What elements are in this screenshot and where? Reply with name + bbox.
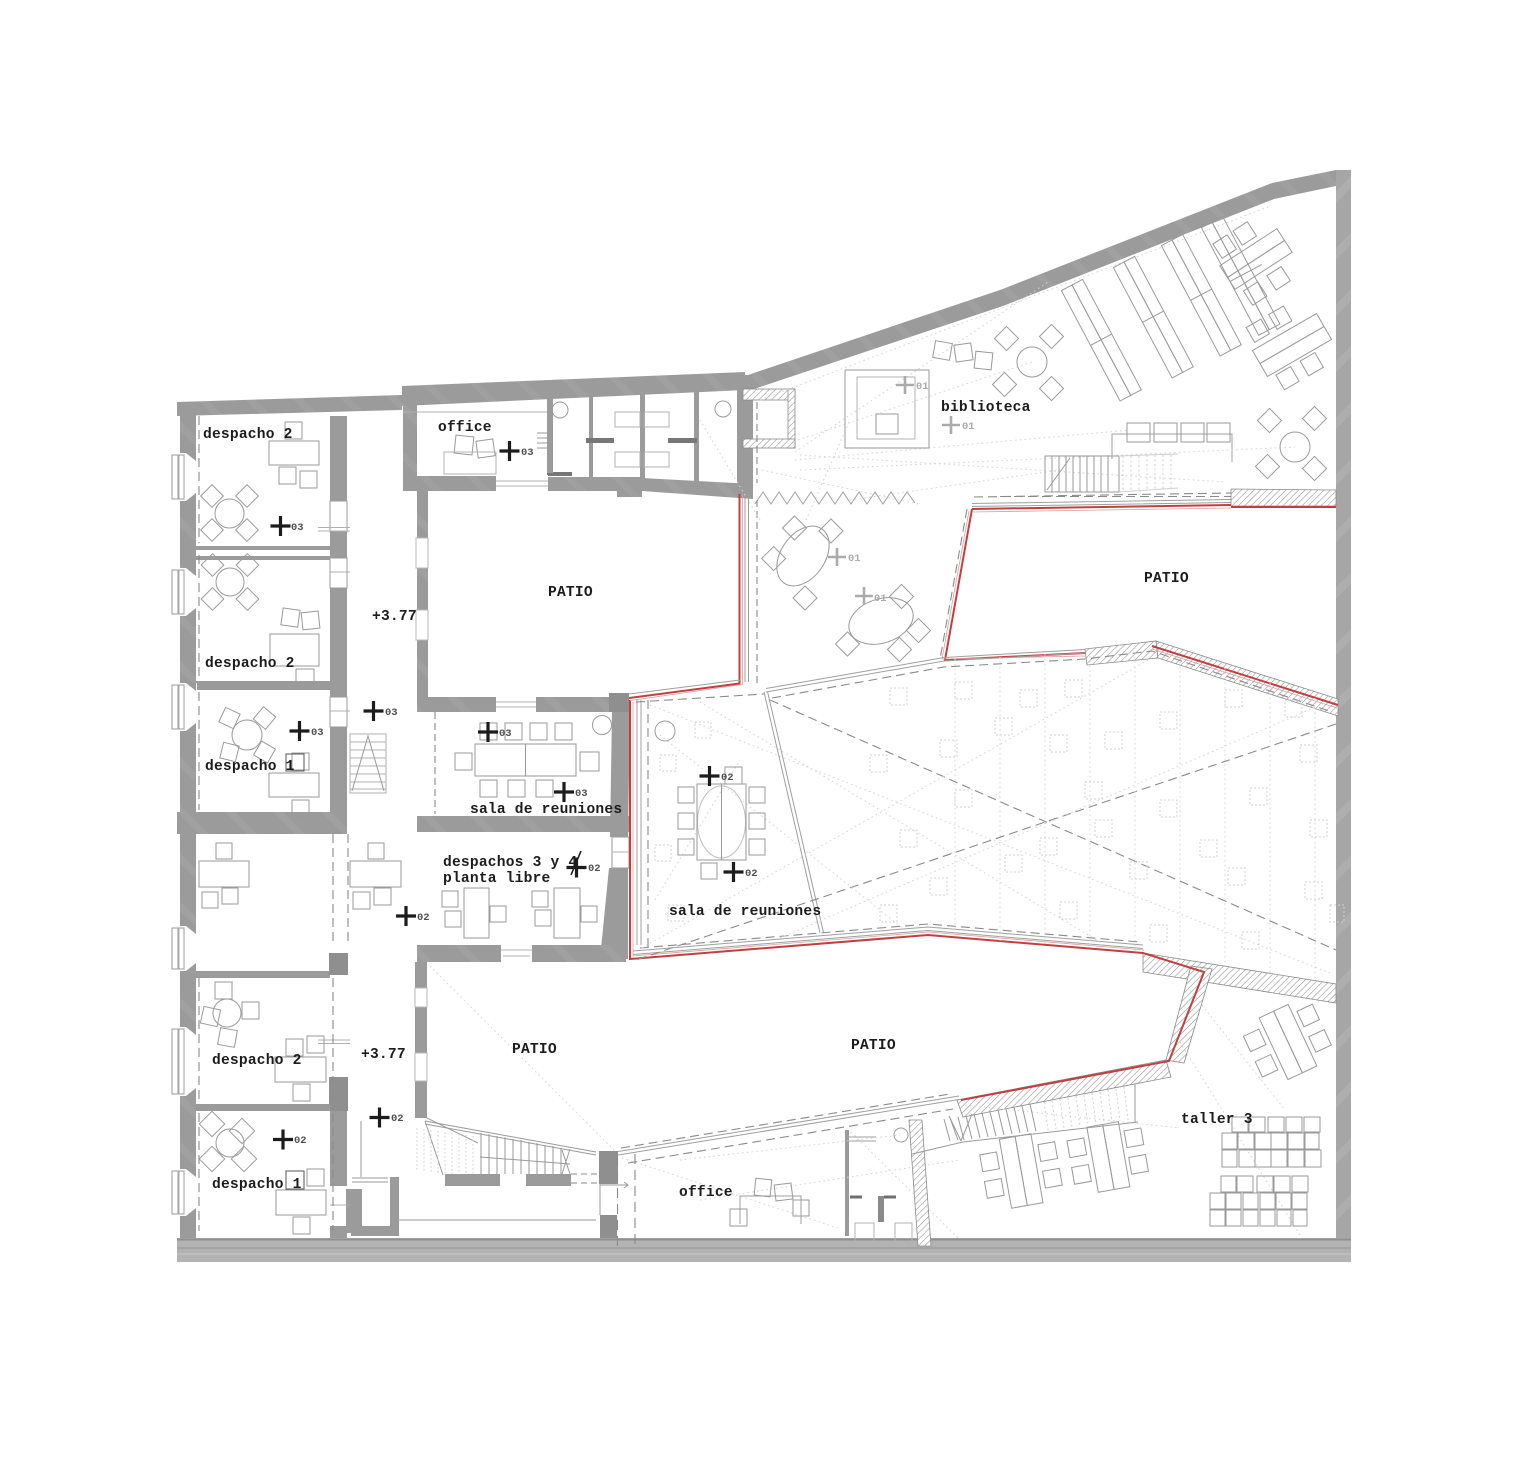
svg-text:03: 03 (311, 727, 324, 739)
svg-text:01: 01 (916, 381, 929, 393)
svg-text:biblioteca: biblioteca (941, 400, 1031, 416)
svg-text:despacho 1: despacho 1 (205, 759, 295, 775)
svg-text:02: 02 (745, 868, 758, 880)
svg-text:03: 03 (575, 788, 588, 800)
svg-text:02: 02 (721, 772, 734, 784)
svg-text:01: 01 (962, 421, 975, 433)
svg-text:02: 02 (588, 863, 601, 875)
svg-text:+3.77: +3.77 (361, 1047, 406, 1063)
svg-text:PATIO: PATIO (512, 1042, 557, 1058)
svg-text:sala de reuniones: sala de reuniones (470, 802, 622, 818)
svg-text:office: office (438, 420, 492, 436)
svg-text:03: 03 (521, 447, 534, 459)
svg-text:02: 02 (391, 1113, 404, 1125)
svg-text:01: 01 (874, 593, 887, 605)
svg-text:03: 03 (291, 522, 304, 534)
svg-text:03: 03 (499, 728, 512, 740)
svg-text:sala de reuniones: sala de reuniones (669, 904, 821, 920)
svg-text:despacho 2: despacho 2 (212, 1053, 302, 1069)
svg-text:PATIO: PATIO (548, 585, 593, 601)
svg-text:taller 3: taller 3 (1181, 1112, 1253, 1128)
svg-text:planta libre: planta libre (443, 871, 551, 887)
svg-text:02: 02 (294, 1135, 307, 1147)
svg-text:despacho 2: despacho 2 (205, 656, 295, 672)
svg-text:despachos 3 y 4: despachos 3 y 4 (443, 855, 577, 871)
svg-text:office: office (679, 1185, 733, 1201)
svg-text:02: 02 (417, 912, 430, 924)
svg-text:PATIO: PATIO (1144, 571, 1189, 587)
svg-text:despacho 1: despacho 1 (212, 1177, 302, 1193)
svg-text:despacho 2: despacho 2 (203, 427, 293, 443)
svg-text:+3.77: +3.77 (372, 609, 417, 625)
svg-text:01: 01 (848, 553, 861, 565)
svg-text:03: 03 (385, 707, 398, 719)
svg-text:PATIO: PATIO (851, 1038, 896, 1054)
